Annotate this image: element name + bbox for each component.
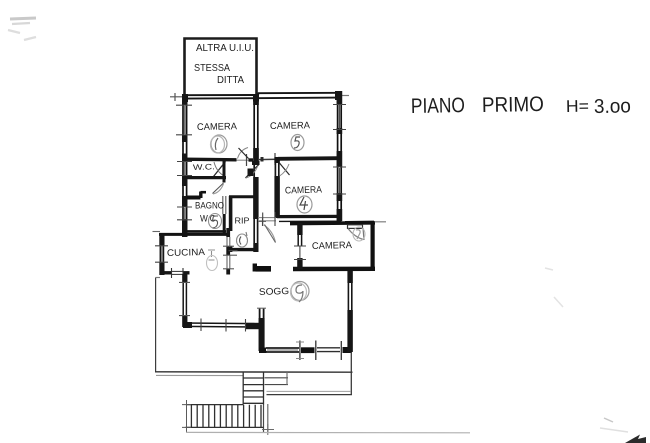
svg-text:SOGG.: SOGG. — [259, 286, 292, 298]
svg-text:RIP: RIP — [235, 216, 250, 226]
svg-text:CUCINA: CUCINA — [167, 247, 206, 259]
svg-text:PIANO: PIANO — [411, 94, 465, 118]
svg-text:STESSA: STESSA — [194, 62, 230, 74]
svg-text:CAMERA: CAMERA — [312, 240, 353, 252]
svg-text:W.C.: W.C. — [193, 162, 215, 172]
svg-text:3.oo: 3.oo — [594, 95, 631, 118]
svg-text:CAMERA: CAMERA — [197, 121, 238, 133]
svg-text:CAMERA: CAMERA — [270, 120, 311, 132]
svg-text:ALTRA U.I.U.: ALTRA U.I.U. — [196, 42, 254, 54]
svg-text:BAGNO: BAGNO — [195, 201, 224, 211]
svg-text:H=: H= — [566, 97, 589, 116]
svg-text:CAMERA: CAMERA — [285, 185, 323, 197]
svg-text:PRIMO: PRIMO — [482, 93, 544, 117]
svg-text:DITTA: DITTA — [217, 74, 244, 86]
